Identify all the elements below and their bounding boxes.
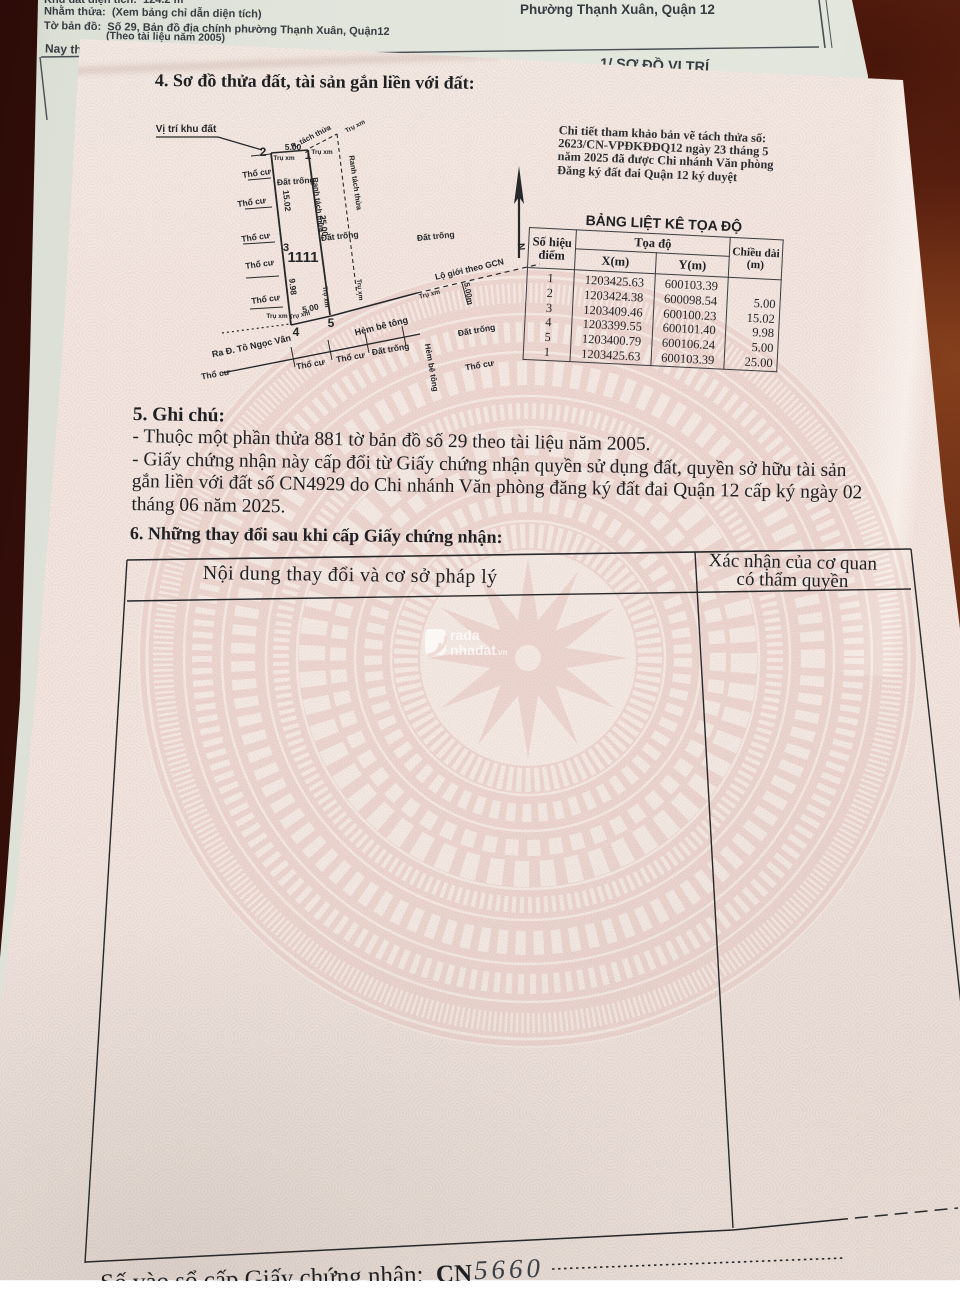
svg-text:Đất trống: Đất trống bbox=[457, 322, 496, 338]
svg-text:Thổ cư: Thổ cư bbox=[241, 230, 272, 244]
svg-text:rada: rada bbox=[450, 627, 480, 643]
svg-text:N: N bbox=[515, 243, 527, 251]
svg-text:2: 2 bbox=[260, 145, 267, 159]
svg-text:Thổ cư: Thổ cư bbox=[237, 195, 268, 209]
svg-text:4: 4 bbox=[293, 325, 300, 339]
svg-text:Trụ xm: Trụ xm bbox=[344, 119, 366, 135]
svg-text:nhadat.vn: nhadat.vn bbox=[450, 642, 508, 658]
svg-text:5: 5 bbox=[328, 316, 335, 330]
svg-text:Ranh tách thửa: Ranh tách thửa bbox=[347, 155, 364, 212]
svg-text:Trụ xm: Trụ xm bbox=[311, 149, 333, 156]
svg-text:R. tách thửa: R. tách thửa bbox=[289, 122, 333, 150]
svg-text:Ranh tách thửa: Ranh tách thửa bbox=[311, 177, 327, 234]
svg-text:Ra Đ. Tô Ngọc Vân: Ra Đ. Tô Ngọc Vân bbox=[211, 333, 292, 360]
svg-text:Trụ xm: Trụ xm bbox=[321, 286, 330, 308]
svg-text:Thổ cư: Thổ cư bbox=[335, 349, 366, 364]
svg-text:Trụ xm: Trụ xm bbox=[273, 155, 295, 162]
svg-text:Thổ cư: Thổ cư bbox=[295, 356, 326, 371]
svg-text:1111: 1111 bbox=[288, 249, 319, 266]
svg-text:5.00: 5.00 bbox=[301, 301, 320, 314]
svg-text:5.00m: 5.00m bbox=[462, 282, 475, 306]
svg-text:Thổ cư: Thổ cư bbox=[464, 357, 495, 372]
svg-text:Hẻm bê tông: Hẻm bê tông bbox=[423, 343, 440, 392]
svg-text:Đất trống: Đất trống bbox=[416, 229, 455, 243]
svg-text:Vị trí khu đất: Vị trí khu đất bbox=[156, 123, 217, 135]
svg-text:Trụ xm: Trụ xm bbox=[355, 279, 364, 301]
svg-text:Thổ cư: Thổ cư bbox=[251, 292, 282, 306]
svg-text:Thổ cư: Thổ cư bbox=[245, 257, 276, 271]
svg-text:Đất trống: Đất trống bbox=[277, 175, 315, 188]
svg-text:Đất trống: Đất trống bbox=[371, 341, 410, 357]
svg-text:Trụ xm: Trụ xm bbox=[266, 313, 288, 320]
svg-text:Lộ giới theo GCN: Lộ giới theo GCN bbox=[434, 256, 505, 282]
svg-text:Thổ cư: Thổ cư bbox=[200, 366, 231, 381]
svg-text:9.98: 9.98 bbox=[287, 278, 299, 296]
svg-text:Hẻm bê tông: Hẻm bê tông bbox=[354, 315, 409, 338]
svg-text:15.02: 15.02 bbox=[281, 190, 293, 212]
